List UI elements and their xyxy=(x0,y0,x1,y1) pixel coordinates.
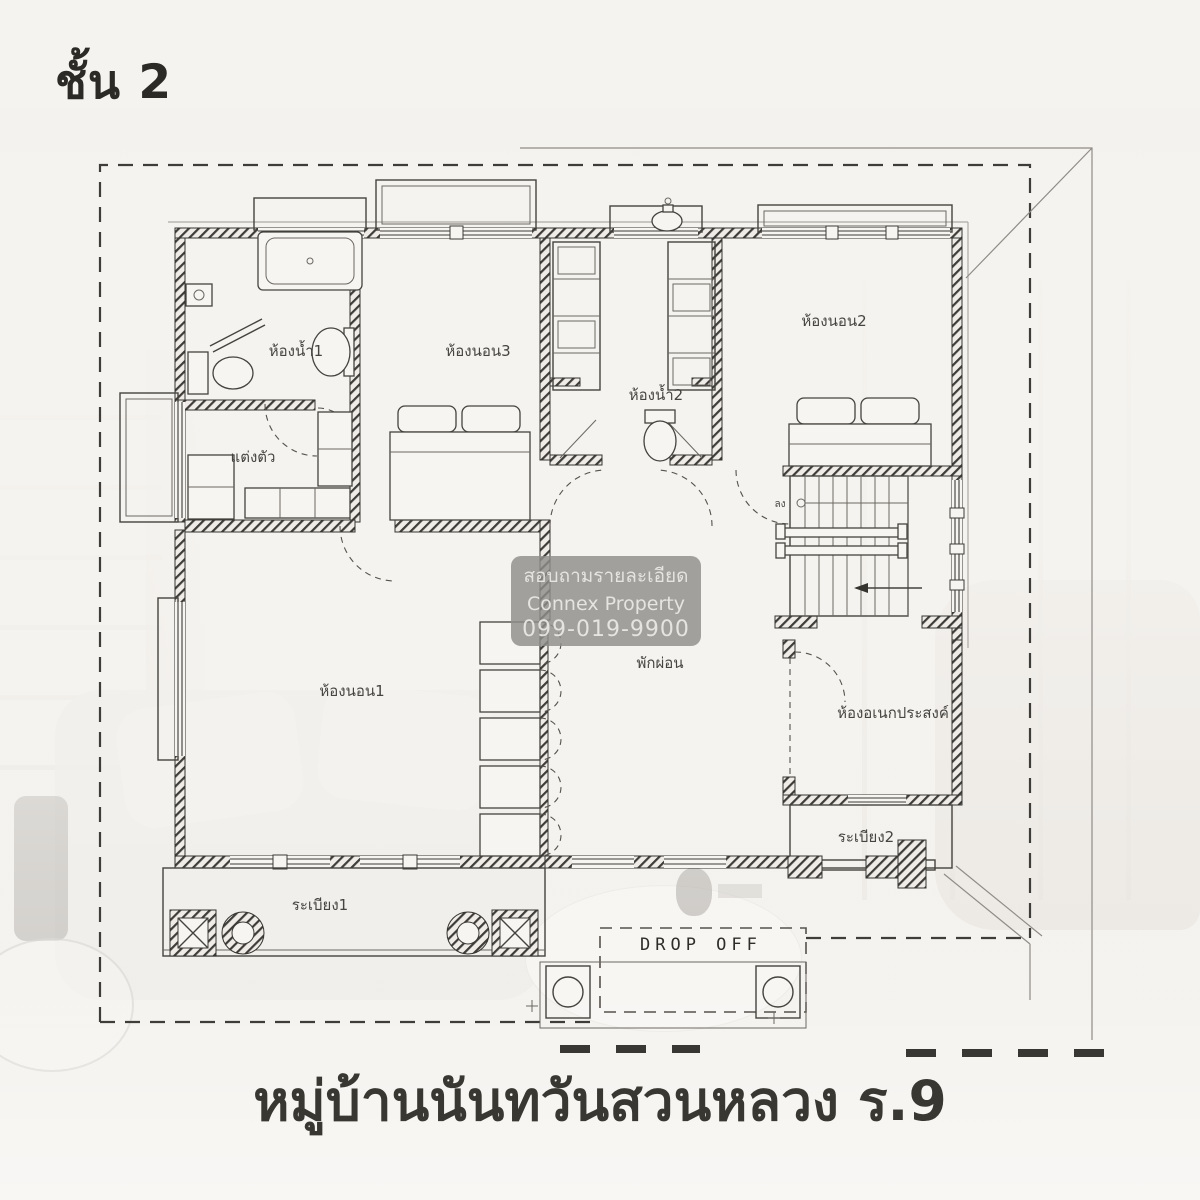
hall-cabinets xyxy=(480,622,561,856)
room-label-bedroom-3: ห้องนอน3 xyxy=(445,342,510,360)
room-label-balcony-1: ระเบียง1 xyxy=(292,896,348,914)
staircase: ลง xyxy=(774,476,922,616)
watermark: สอบถามรายละเอียด Connex Property 099-019… xyxy=(511,556,701,646)
page: ลง xyxy=(0,0,1200,1200)
watermark-line2: Connex Property xyxy=(527,593,685,615)
room-label-bathroom-1: ห้องน้ำ1 xyxy=(269,340,323,360)
project-title: หมู่บ้านนันทวันสวนหลวง ร.9 xyxy=(0,1058,1200,1145)
room-label-bedroom-1: ห้องนอน1 xyxy=(319,682,384,700)
room-label-dressing-room: แต่งตัว xyxy=(231,448,276,466)
room-label-bathroom-2: ห้องน้ำ2 xyxy=(629,384,683,404)
corner-sink xyxy=(186,284,212,306)
column xyxy=(866,856,900,878)
pillow xyxy=(462,406,520,432)
pillow xyxy=(398,406,456,432)
balcony-2-structure xyxy=(788,805,952,888)
fixtures-bedroom-2 xyxy=(789,398,931,466)
watermark-phone: 099-019-9900 xyxy=(522,617,690,642)
floor-label: ชั้น 2 xyxy=(55,44,172,119)
balcony-1-structure xyxy=(163,868,545,956)
fixtures-bathroom-1 xyxy=(186,232,362,394)
shower-partition xyxy=(210,319,265,352)
column xyxy=(898,840,926,888)
column xyxy=(788,856,822,878)
room-label-bedroom-2: ห้องนอน2 xyxy=(801,312,866,330)
bed xyxy=(390,432,530,520)
room-label-living-area: พักผ่อน xyxy=(636,654,683,672)
pillow xyxy=(797,398,855,424)
stair-down-label: ลง xyxy=(774,499,785,510)
room-label-multipurpose-room: ห้องอเนกประสงค์ xyxy=(837,704,949,722)
drop-off-label: DROP OFF xyxy=(640,935,762,955)
drop-off-area: DROP OFF xyxy=(526,928,806,1028)
basin xyxy=(652,211,682,231)
pillow xyxy=(861,398,919,424)
toilet-bowl xyxy=(644,421,676,461)
fixtures-bedroom-3 xyxy=(390,406,530,520)
bathtub xyxy=(258,232,362,290)
toilet-tank xyxy=(188,352,208,394)
room-label-balcony-2: ระเบียง2 xyxy=(838,828,894,846)
watermark-line1: สอบถามรายละเอียด xyxy=(524,561,689,591)
bed xyxy=(789,424,931,466)
toilet-bowl xyxy=(213,357,253,389)
